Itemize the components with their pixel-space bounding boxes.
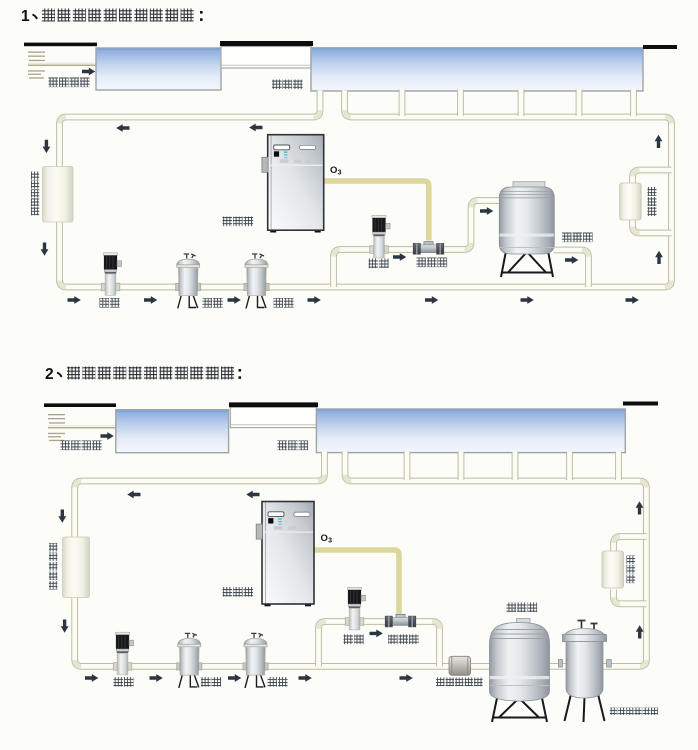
svg-text:O: O <box>321 533 328 544</box>
svg-text:1: 1 <box>21 8 30 25</box>
svg-text:O: O <box>330 165 337 176</box>
svg-text:3: 3 <box>328 538 332 545</box>
svg-text:2: 2 <box>45 366 54 383</box>
svg-text:3: 3 <box>338 170 342 177</box>
